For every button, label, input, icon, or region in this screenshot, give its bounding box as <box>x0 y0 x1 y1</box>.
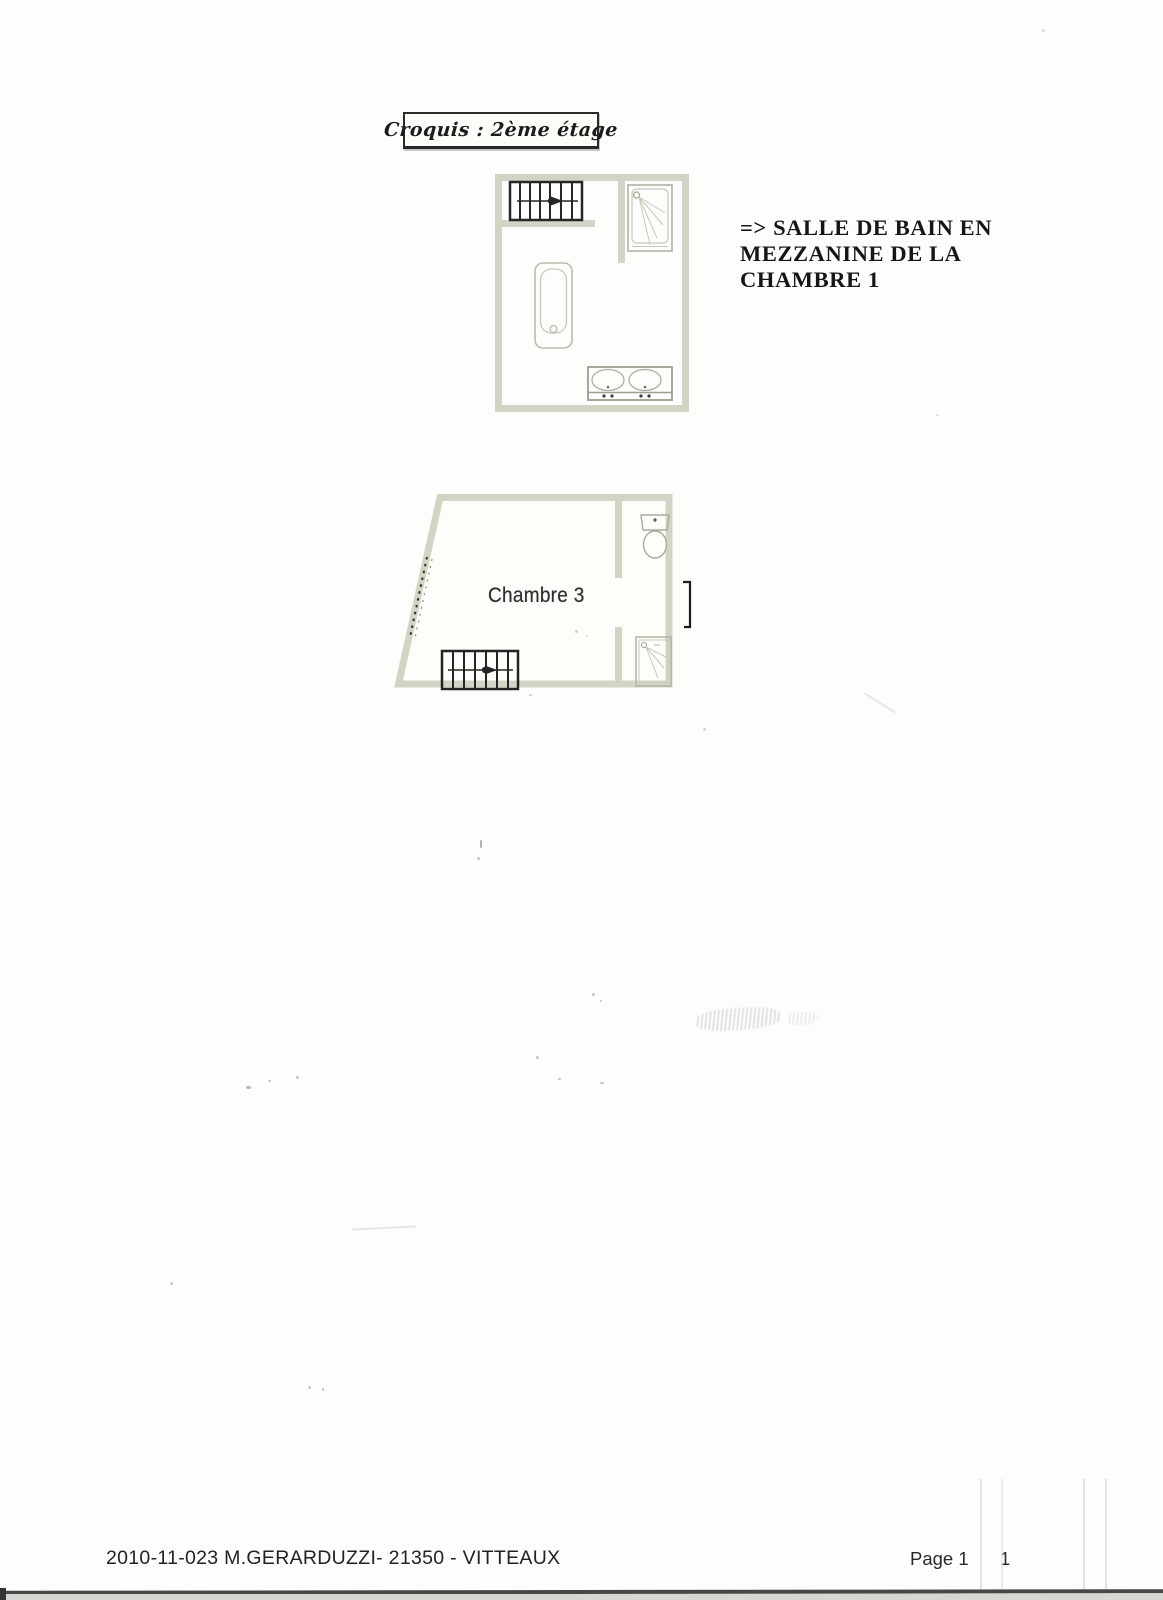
upper-floor-plan <box>487 168 697 418</box>
scan-speck <box>703 728 706 731</box>
scan-table-line <box>1083 1479 1085 1592</box>
scan-speck <box>592 993 595 996</box>
annotation-line-1: => SALLE DE BAIN EN <box>740 215 1040 241</box>
scan-speck <box>246 1086 251 1089</box>
bathroom-divider-wall-lower <box>615 627 622 684</box>
scan-speck <box>600 1082 604 1084</box>
staircase-icon <box>510 182 582 220</box>
scan-speck <box>480 840 482 848</box>
scan-speck <box>1042 29 1045 32</box>
shower-icon <box>628 185 672 251</box>
footer-page-label: Page 1 <box>910 1548 969 1570</box>
scan-corner-mark <box>0 1588 6 1600</box>
bathroom-divider-wall-upper <box>615 501 622 578</box>
scan-speck <box>558 1078 561 1080</box>
scan-speck <box>268 1080 271 1082</box>
scan-speck <box>170 1282 173 1285</box>
footer-reference: 2010-11-023 M.GERARDUZZI- 21350 - VITTEA… <box>106 1547 560 1570</box>
scan-mark <box>352 1225 416 1230</box>
scan-speck <box>308 1386 311 1389</box>
scan-speck <box>322 1388 324 1391</box>
sketch-title: Croquis : 2ème étage <box>383 119 618 141</box>
door-opening-icon <box>683 582 690 627</box>
bathtub-icon <box>535 263 572 348</box>
scan-smudge <box>694 1005 781 1033</box>
sketch-title-box: Croquis : 2ème étage <box>403 112 599 149</box>
scan-speck <box>536 1056 539 1059</box>
shower-divider-wall <box>618 181 625 263</box>
scan-page-edge-shadow <box>0 1594 1163 1600</box>
scan-speck <box>586 635 588 637</box>
scan-table-line <box>1105 1479 1107 1592</box>
room-label: Chambre 3 <box>488 584 612 608</box>
scan-smudge <box>786 1011 819 1026</box>
scan-speck <box>600 1000 602 1002</box>
scan-speck <box>936 414 939 416</box>
scanned-page: Croquis : 2ème étage <box>0 0 1163 1600</box>
scan-table-line <box>1001 1479 1003 1592</box>
annotation-line-2: MEZZANINE DE LA <box>740 241 1040 267</box>
annotation-line-3: CHAMBRE 1 <box>740 267 1040 293</box>
scan-speck <box>477 857 480 860</box>
scan-mark <box>864 693 896 714</box>
annotation-text: => SALLE DE BAIN EN MEZZANINE DE LA CHAM… <box>740 215 1040 293</box>
scan-speck <box>575 630 578 633</box>
scan-speck <box>296 1076 299 1079</box>
scan-speck <box>529 694 532 696</box>
double-sink-icon <box>588 367 672 400</box>
scan-table-line <box>980 1479 982 1592</box>
